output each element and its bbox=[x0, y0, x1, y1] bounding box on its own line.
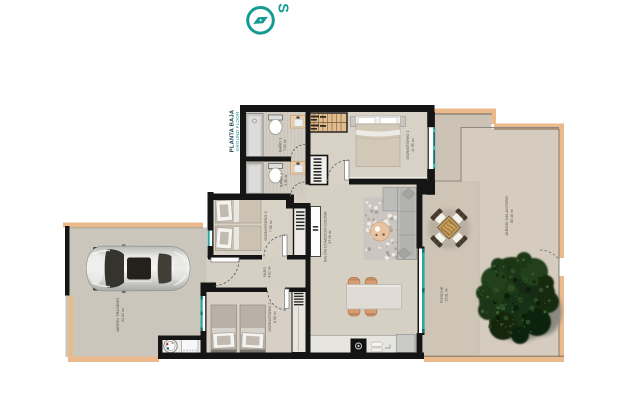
svg-text:PORCHE: PORCHE bbox=[439, 286, 444, 303]
svg-text:JARDÍN DELANTERO: JARDÍN DELANTERO bbox=[504, 196, 509, 236]
svg-text:PASO: PASO bbox=[262, 267, 267, 278]
svg-text:37.06 m²: 37.06 m² bbox=[328, 229, 332, 243]
svg-text:S: S bbox=[275, 3, 291, 13]
svg-text:DORMITORIO 3: DORMITORIO 3 bbox=[263, 211, 268, 241]
svg-text:BAÑO 1: BAÑO 1 bbox=[278, 138, 283, 152]
svg-text:11.95 m²: 11.95 m² bbox=[411, 137, 415, 151]
svg-text:24.00 m²: 24.00 m² bbox=[121, 307, 125, 322]
svg-text:7.60 m²: 7.60 m² bbox=[283, 138, 287, 150]
svg-text:SALÓN COMEDOR COCINA: SALÓN COMEDOR COCINA bbox=[323, 211, 328, 262]
svg-text:JARDÍN TRASERO: JARDÍN TRASERO bbox=[115, 298, 120, 333]
svg-text:3.49 m²: 3.49 m² bbox=[284, 173, 288, 185]
svg-text:8.56 m²: 8.56 m² bbox=[273, 310, 277, 323]
svg-text:7.56 m²: 7.56 m² bbox=[269, 219, 273, 232]
svg-text:DORMITORIO 2: DORMITORIO 2 bbox=[267, 302, 272, 332]
svg-text:GROUND FLOOR: GROUND FLOOR bbox=[235, 111, 240, 151]
svg-text:80.46 m²: 80.46 m² bbox=[510, 208, 514, 223]
svg-text:4.61 m²: 4.61 m² bbox=[268, 265, 272, 277]
svg-text:BAÑO 2: BAÑO 2 bbox=[279, 173, 284, 187]
svg-text:DORMITORIO 1: DORMITORIO 1 bbox=[405, 130, 410, 160]
svg-text:15.91 m²: 15.91 m² bbox=[445, 287, 449, 301]
